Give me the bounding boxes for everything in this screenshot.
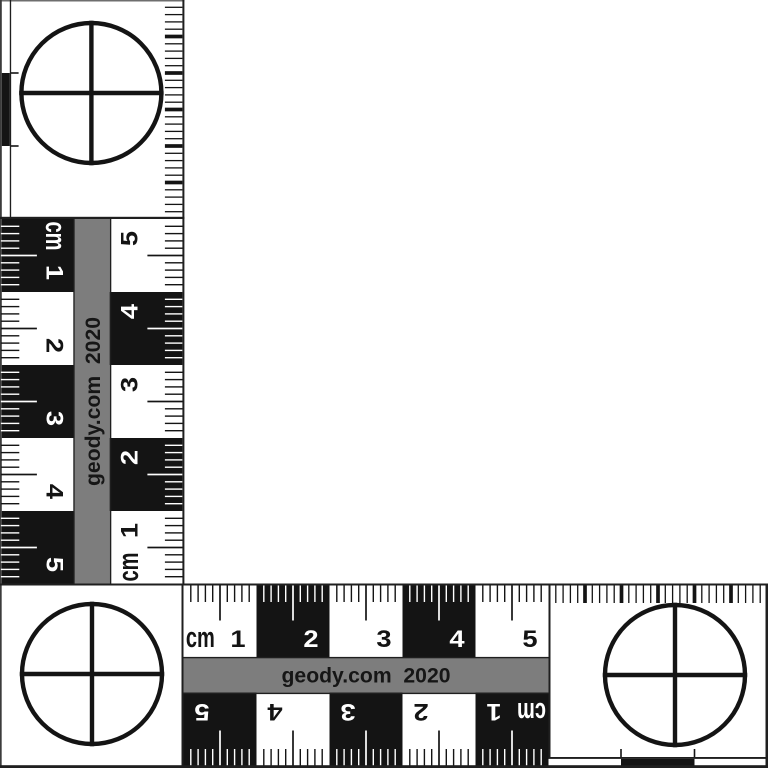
svg-text:cm: cm [186,622,215,654]
svg-text:3: 3 [340,698,355,725]
svg-text:1: 1 [41,265,68,280]
svg-text:4: 4 [267,698,283,725]
svg-text:4: 4 [449,626,465,653]
svg-text:2: 2 [303,626,318,653]
svg-text:1: 1 [116,523,143,538]
svg-text:geody.com 2020: geody.com 2020 [81,317,105,486]
svg-text:1: 1 [230,626,245,653]
svg-text:5: 5 [522,626,537,653]
svg-text:3: 3 [116,377,143,392]
svg-text:3: 3 [41,411,68,426]
svg-text:5: 5 [41,557,68,572]
svg-text:cm: cm [113,553,145,582]
svg-text:2: 2 [413,698,428,725]
svg-text:cm: cm [39,222,71,251]
svg-text:4: 4 [116,303,143,319]
svg-text:cm: cm [517,696,546,728]
svg-text:3: 3 [376,626,391,653]
svg-text:1: 1 [486,698,501,725]
svg-text:2: 2 [41,338,68,353]
svg-text:2: 2 [116,450,143,465]
svg-text:geody.com 2020: geody.com 2020 [282,664,451,688]
svg-text:5: 5 [116,231,143,246]
svg-text:5: 5 [194,698,209,725]
svg-text:4: 4 [41,484,68,500]
